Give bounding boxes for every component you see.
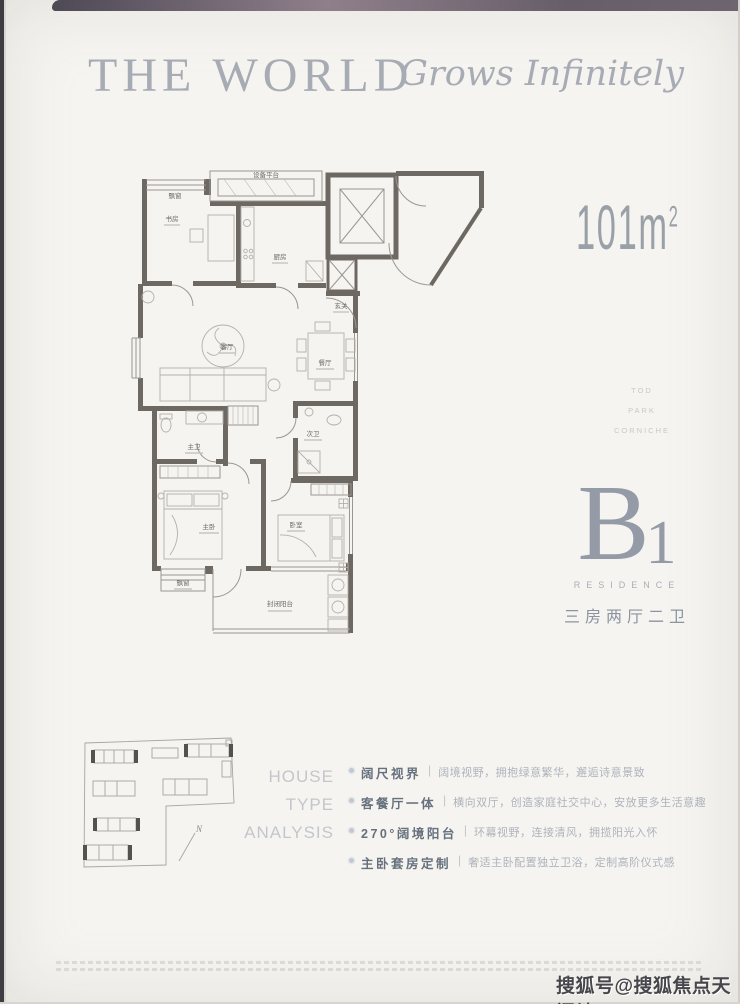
- room-label-balcony: 封闭阳台: [267, 599, 293, 608]
- analysis-feature: 270°阔境阳台: [361, 823, 457, 842]
- north-label: N: [195, 824, 203, 834]
- keyword-corniche: CORNICHE: [592, 426, 692, 435]
- bullet-dot-icon: [349, 828, 354, 833]
- room-label-kitchen: 厨房: [274, 252, 287, 261]
- analysis-description: 阔境视野，拥抱绿意繁华，邂逅诗意景致: [438, 763, 645, 780]
- unit-letter: B: [577, 468, 649, 580]
- room-label-dining: 餐厅: [319, 358, 333, 367]
- analysis-feature: 阔尺视界: [361, 763, 421, 782]
- room-label-study: 书房: [166, 214, 179, 223]
- analysis-list: 阔尺视界 | 阔境视野，拥抱绿意繁华，邂逅诗意景致 客餐厅一体 | 横向双厅，创…: [349, 763, 695, 883]
- analysis-heading: HOUSE TYPE ANALYSIS: [240, 763, 334, 847]
- keyword-tod: TOD: [592, 386, 692, 395]
- analysis-description: 环幕视野，连接清风，拥揽阳光入怀: [474, 823, 658, 840]
- analysis-separator: |: [428, 763, 431, 777]
- area-value: 101m: [576, 192, 669, 263]
- room-label-second-bath: 次卫: [307, 429, 321, 438]
- analysis-separator: |: [464, 823, 467, 837]
- unit-number: 1: [646, 506, 677, 580]
- keyplan: N: [75, 733, 245, 878]
- area-label: 101m2: [576, 192, 679, 264]
- unit-code: B 1: [552, 468, 702, 580]
- brand-tagline: Grows Infinitely: [400, 54, 684, 94]
- analysis-item: 客餐厅一体 | 横向双厅，创造家庭社交中心，安放更多生活意趣: [349, 793, 695, 814]
- analysis-item: 阔尺视界 | 阔境视野，拥抱绿意繁华，邂逅诗意景致: [349, 763, 695, 784]
- analysis-separator: |: [458, 853, 461, 867]
- bullet-dot-icon: [349, 768, 354, 773]
- analysis-description: 横向双厅，创造家庭社交中心，安放更多生活意趣: [453, 793, 706, 810]
- residence-label: RESIDENCE: [552, 580, 702, 590]
- analysis-feature: 主卧套房定制: [361, 853, 451, 872]
- room-label-bay-bottom: 飘窗: [177, 578, 190, 587]
- brand-title: THE WORLD: [88, 48, 413, 103]
- floorplan-windows-and-doors: [132, 171, 431, 633]
- floorplan: 设备平台 飘窗 书房 厨房 玄关 餐厅 客厅 主卫 次卫 主卧 卧室 飘窗 封闭…: [128, 163, 498, 643]
- photo-edge-left: [0, 0, 4, 1004]
- analysis-heading-line: HOUSE: [240, 763, 334, 791]
- flyer-page: THE WORLD Grows Infinitely: [0, 0, 740, 1004]
- room-label-bedroom: 卧室: [290, 520, 304, 529]
- room-label-master-bath: 主卫: [188, 442, 202, 451]
- room-label-bay-top: 飘窗: [169, 191, 182, 200]
- unit-type-label: 三房两厅二卫: [552, 603, 702, 627]
- room-label-equipment: 设备平台: [253, 170, 279, 179]
- room-label-master-bedroom: 主卧: [203, 522, 217, 531]
- analysis-item: 主卧套房定制 | 奢适主卧配置独立卫浴，定制高阶仪式感: [349, 853, 695, 874]
- unit-badge: B 1 RESIDENCE 三房两厅二卫: [552, 468, 702, 627]
- area-superscript: 2: [669, 201, 680, 234]
- watermark: 搜狐号@搜狐焦点天门站: [556, 971, 740, 1004]
- analysis-separator: |: [443, 793, 446, 807]
- bullet-dot-icon: [349, 798, 354, 803]
- photo-edge-top: [52, 0, 740, 11]
- room-label-living: 客厅: [221, 342, 235, 351]
- north-arrow: [179, 833, 195, 861]
- analysis-item: 270°阔境阳台 | 环幕视野，连接清风，拥揽阳光入怀: [349, 823, 695, 844]
- room-label-foyer: 玄关: [335, 301, 349, 310]
- floorplan-room-labels: 设备平台 飘窗 书房 厨房 玄关 餐厅 客厅 主卫 次卫 主卧 卧室 飘窗 封闭…: [164, 170, 349, 611]
- bullet-dot-icon: [349, 858, 354, 863]
- keyword-list: TOD PARK CORNICHE: [592, 386, 692, 446]
- analysis-feature: 客餐厅一体: [361, 793, 436, 812]
- analysis-heading-line: TYPE: [240, 791, 334, 819]
- analysis-description: 奢适主卧配置独立卫浴，定制高阶仪式感: [468, 853, 675, 870]
- keyword-park: PARK: [592, 406, 692, 415]
- disclaimer-text-line: [56, 961, 704, 964]
- analysis-heading-line: ANALYSIS: [240, 819, 334, 847]
